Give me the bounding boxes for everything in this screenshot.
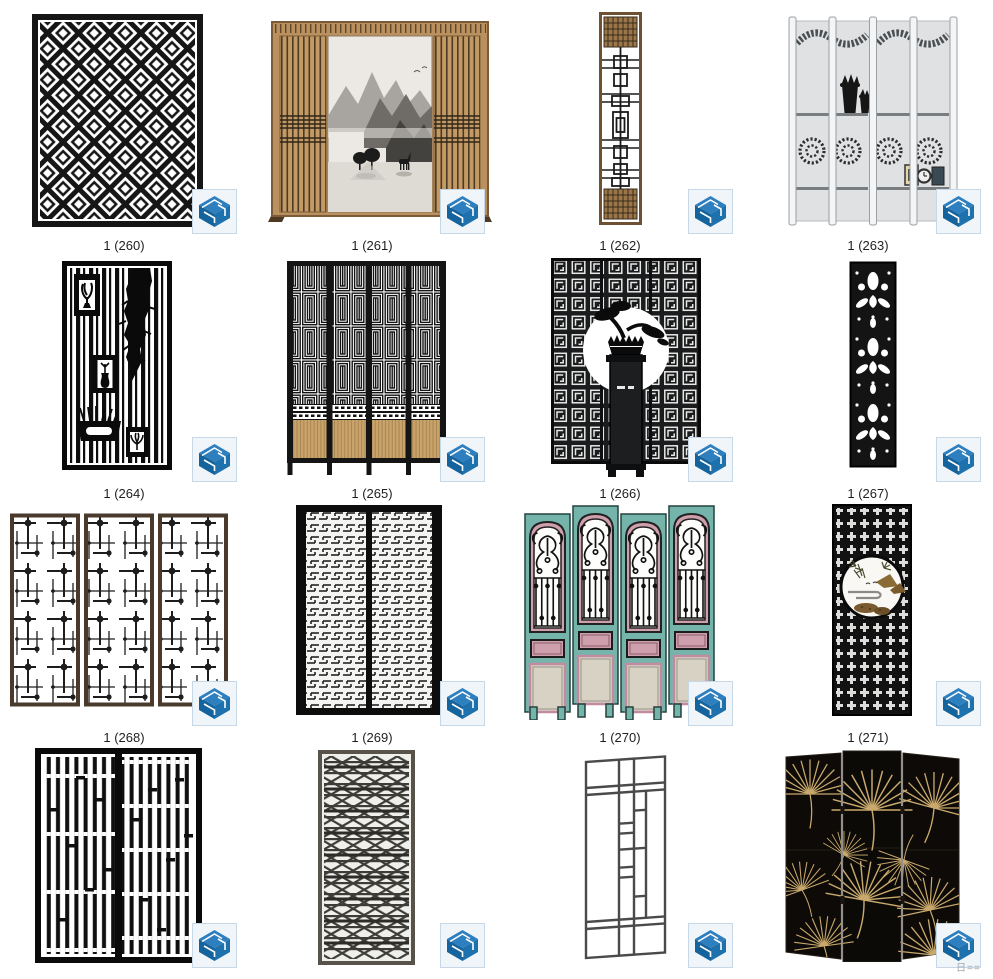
file-item-1-263[interactable]: 1 (263) — [744, 0, 992, 246]
thumbnail-narrow-wood-lattice-panel — [599, 12, 642, 225]
thumbnail-white-shelf-folding-screen — [787, 13, 958, 228]
file-item-1-271[interactable]: 1 (271) — [744, 492, 992, 738]
thumbnail-carved-floral-panel — [849, 261, 897, 468]
sketchup-logo-icon — [192, 923, 237, 968]
thumbnail-lattice-wood-folding-screen — [285, 258, 448, 475]
file-item-1-269[interactable]: 1 (269) — [248, 492, 496, 738]
sketchup-logo-icon — [688, 437, 733, 482]
file-item-1-267[interactable]: 1 (267) — [744, 248, 992, 494]
file-item-row4-2[interactable] — [248, 734, 496, 979]
file-item-1-264[interactable]: 1 (264) — [0, 248, 248, 494]
sketchup-logo-icon — [440, 923, 485, 968]
thumbnail-triangle-mesh-panel — [318, 750, 415, 965]
sketchup-logo-icon — [936, 189, 981, 234]
file-item-1-261[interactable]: 1 (261) — [248, 0, 496, 246]
sketchup-logo-icon — [440, 189, 485, 234]
sketchup-logo-icon — [936, 437, 981, 482]
file-item-row4-1[interactable] — [0, 734, 248, 979]
file-item-1-266[interactable]: 1 (266) — [496, 248, 744, 494]
sketchup-logo-icon — [936, 681, 981, 726]
thumbnail-maze-lattice-two-panel-screen — [295, 504, 443, 716]
thumbnail-moon-bonsai-fret-screen — [551, 258, 701, 477]
sketchup-logo-icon — [192, 189, 237, 234]
file-item-1-270[interactable]: 1 (270) — [496, 492, 744, 738]
thumbnail-sayagata-lattice-screen — [32, 14, 203, 227]
file-item-1-268[interactable]: 1 (268) — [0, 492, 248, 738]
thumbnail-grid: 1 (260) — [0, 0, 993, 979]
sketchup-logo-icon — [688, 923, 733, 968]
file-item-row4-3[interactable] — [496, 734, 744, 979]
thumbnail-minimal-metal-frame-screen — [579, 748, 672, 960]
file-item-row4-4[interactable] — [744, 734, 992, 979]
sketchup-logo-icon — [192, 437, 237, 482]
file-item-1-260[interactable]: 1 (260) — [0, 0, 248, 246]
sketchup-logo-icon — [688, 681, 733, 726]
partial-watermark: 日== — [956, 959, 981, 974]
sketchup-logo-icon — [192, 681, 237, 726]
thumbnail-bamboo-slat-two-panel-screen — [35, 748, 202, 963]
sketchup-logo-icon — [440, 681, 485, 726]
thumbnail-slat-plant-silhouette-screen — [62, 261, 172, 470]
sketchup-logo-icon — [440, 437, 485, 482]
file-item-1-262[interactable]: 1 (262) — [496, 0, 744, 246]
file-item-1-265[interactable]: 1 (265) — [248, 248, 496, 494]
thumbnail-lattice-panel-round-inset — [832, 504, 912, 716]
sketchup-logo-icon — [688, 189, 733, 234]
thumbnail-abstract-lines-three-panel-screen — [9, 513, 229, 708]
